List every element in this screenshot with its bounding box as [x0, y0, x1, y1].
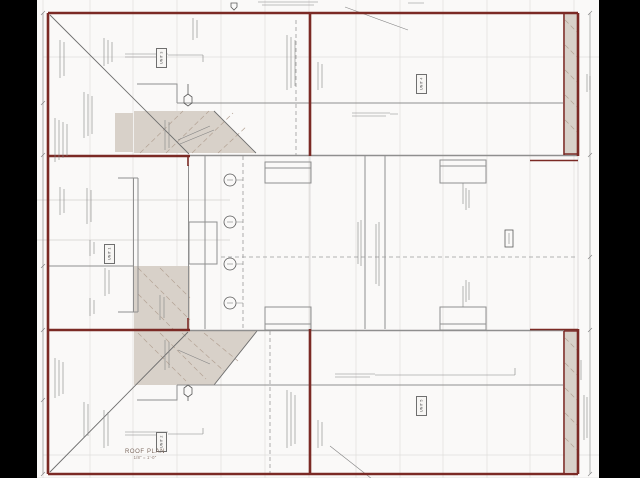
drawing-scale: 1/8" = 1'-0"	[114, 455, 176, 461]
dimension-lines	[41, 11, 592, 484]
roof-plan-viewport: UNIT 3 UNIT 4 UNIT 1 UNIT 5 UNIT 2 ROOF …	[0, 0, 640, 490]
roof-curbs	[189, 160, 486, 330]
unit-tag-3: UNIT 3	[156, 48, 167, 68]
roof-plan-drawing	[0, 0, 640, 490]
letterbox-left	[0, 0, 37, 478]
hatched-roof-areas	[115, 14, 577, 472]
drawing-title-block: ROOF PLAN 1/8" = 1'-0"	[114, 449, 176, 461]
roof-lines	[48, 20, 578, 473]
grid-bubble	[224, 174, 236, 309]
slope-diagonals	[50, 7, 408, 479]
unit-tag-4: UNIT 4	[416, 74, 427, 94]
sheet-margin-bottom	[0, 478, 640, 490]
unit-tag-1: UNIT 1	[104, 244, 115, 264]
exterior-walls	[48, 13, 578, 474]
unit-tag-5: UNIT 5	[416, 396, 427, 416]
letterbox-right	[599, 0, 640, 478]
north-flag-icon	[231, 3, 237, 10]
